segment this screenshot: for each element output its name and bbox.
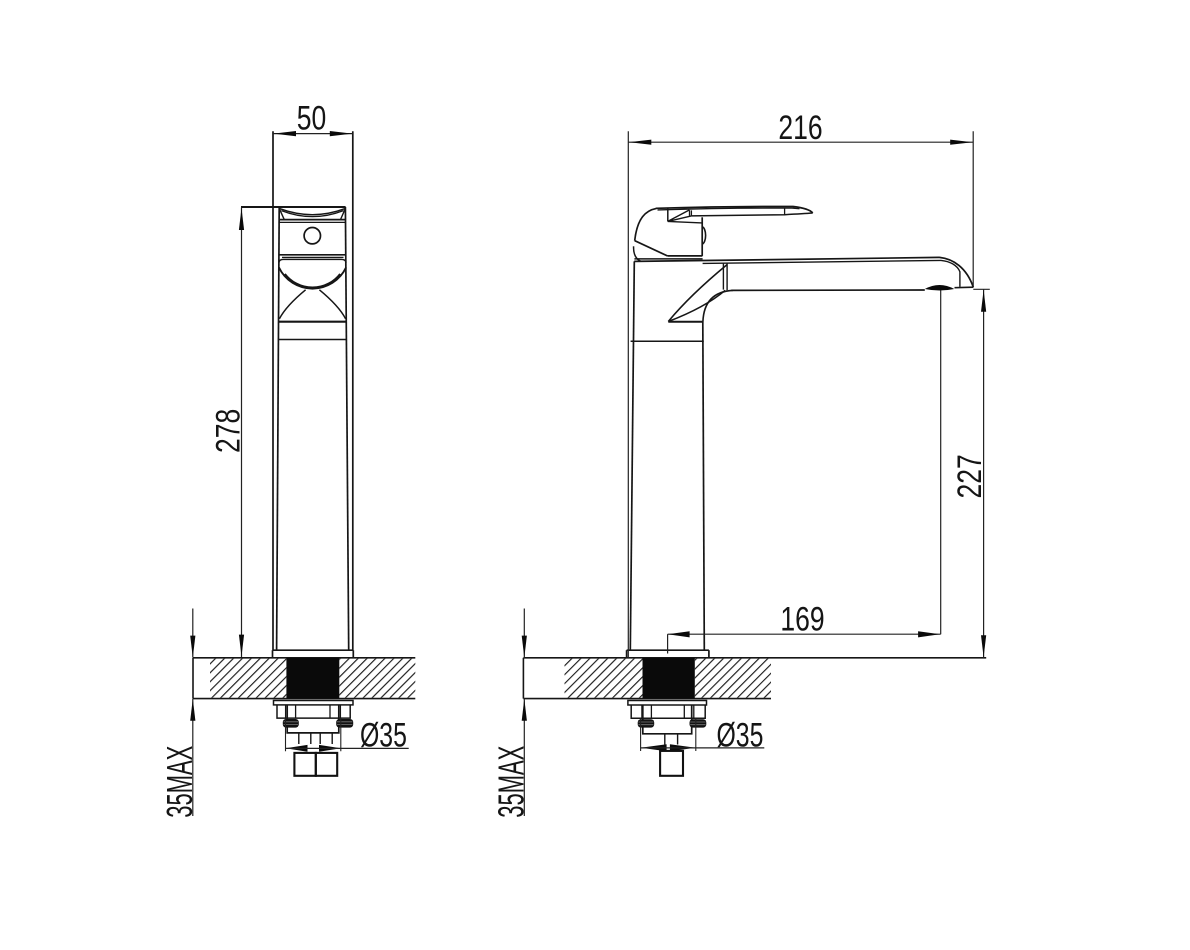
svg-text:216: 216: [778, 109, 822, 147]
svg-text:Ø35: Ø35: [717, 717, 764, 755]
svg-text:35MAX: 35MAX: [161, 746, 201, 818]
svg-text:227: 227: [951, 454, 989, 498]
svg-text:35MAX: 35MAX: [492, 746, 532, 818]
svg-text:278: 278: [209, 409, 247, 453]
svg-text:50: 50: [297, 99, 327, 137]
svg-text:169: 169: [780, 600, 824, 638]
svg-text:Ø35: Ø35: [360, 717, 407, 755]
